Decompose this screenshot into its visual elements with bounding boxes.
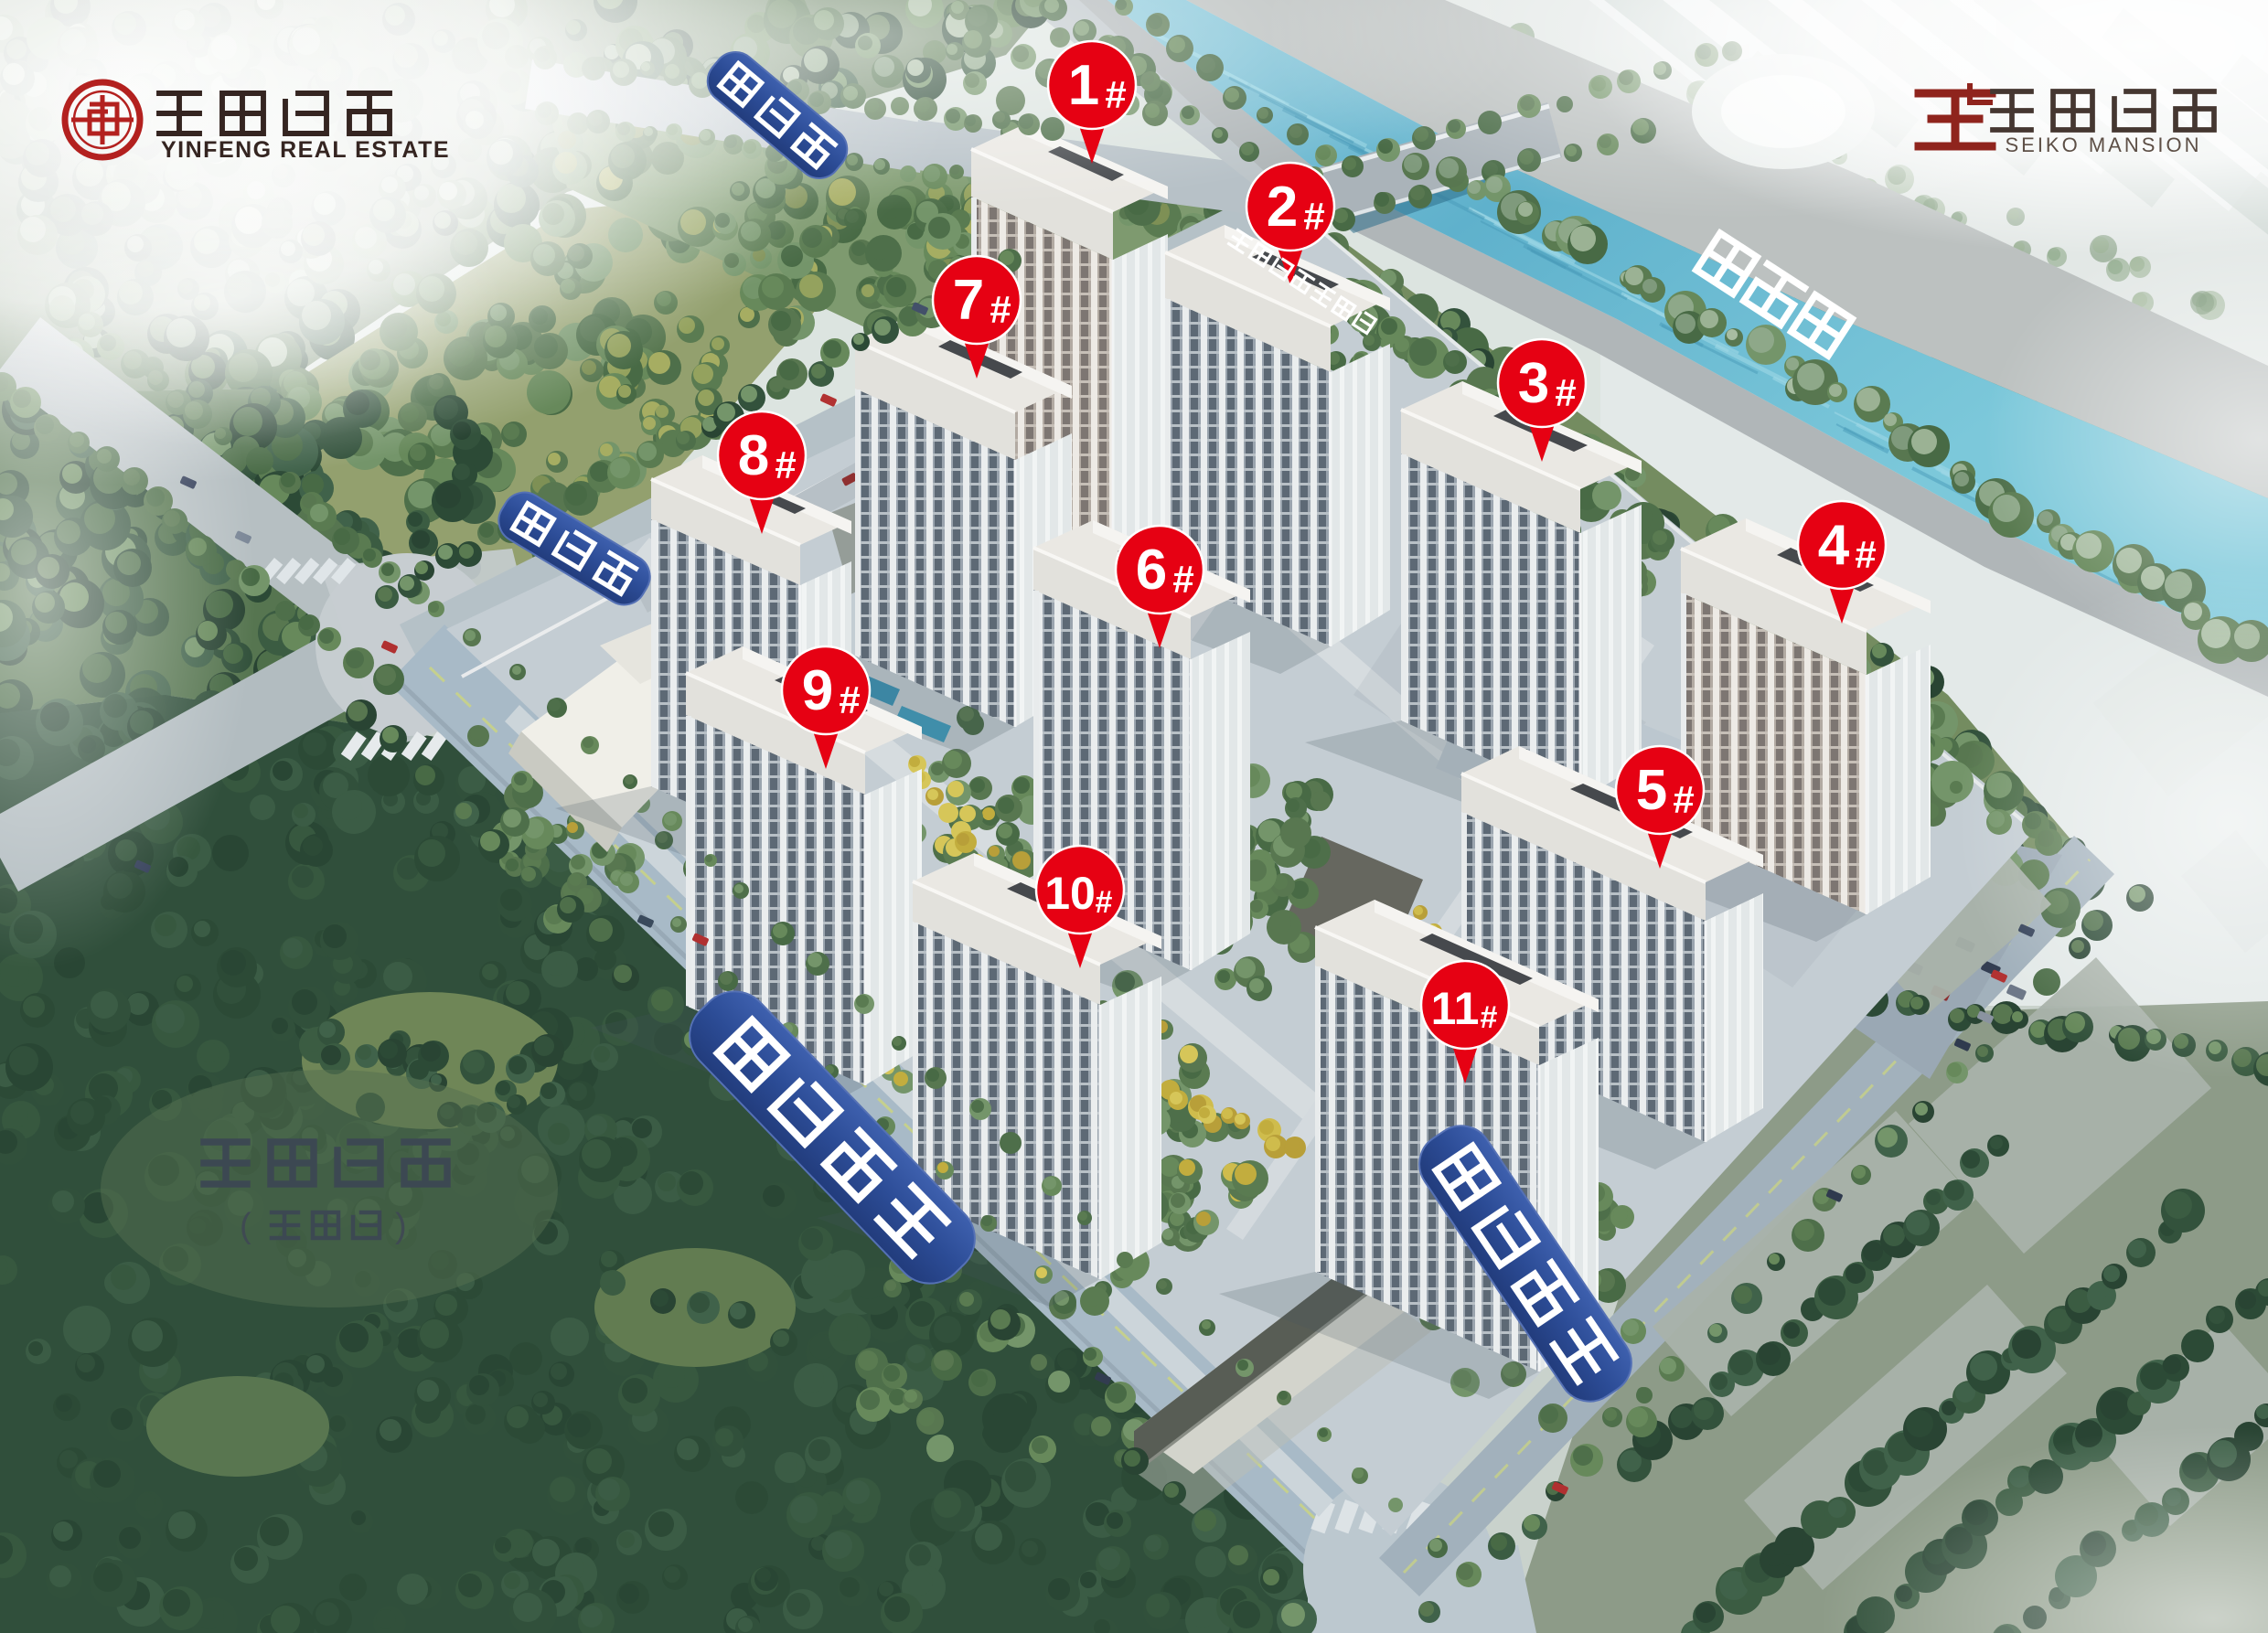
svg-text:1: 1 [1068, 54, 1099, 117]
svg-text:#: # [775, 443, 796, 486]
svg-text:7: 7 [953, 269, 984, 332]
svg-text:): ) [395, 1207, 407, 1245]
svg-text:#: # [1303, 195, 1324, 238]
svg-text:#: # [1172, 558, 1193, 601]
svg-text:8: 8 [738, 424, 769, 487]
svg-text:#: # [839, 678, 860, 721]
svg-text:3: 3 [1518, 352, 1549, 415]
svg-text:YINFENG REAL ESTATE: YINFENG REAL ESTATE [161, 137, 450, 163]
svg-text:#: # [1673, 778, 1694, 821]
svg-text:#: # [1481, 1000, 1498, 1035]
svg-text:9: 9 [802, 659, 833, 722]
svg-text:#: # [1105, 73, 1126, 116]
svg-text:#: # [990, 288, 1011, 331]
svg-text:10: 10 [1044, 868, 1096, 919]
svg-text:(: ( [240, 1207, 251, 1245]
svg-text:5: 5 [1636, 759, 1667, 822]
svg-text:#: # [1096, 885, 1113, 920]
svg-text:#: # [1555, 371, 1576, 414]
svg-text:#: # [1855, 533, 1876, 576]
svg-text:4: 4 [1818, 514, 1850, 577]
svg-text:6: 6 [1136, 539, 1167, 602]
svg-text:SEIKO MANSION: SEIKO MANSION [2005, 133, 2201, 156]
svg-text:2: 2 [1267, 176, 1298, 239]
svg-text:11: 11 [1431, 983, 1480, 1034]
